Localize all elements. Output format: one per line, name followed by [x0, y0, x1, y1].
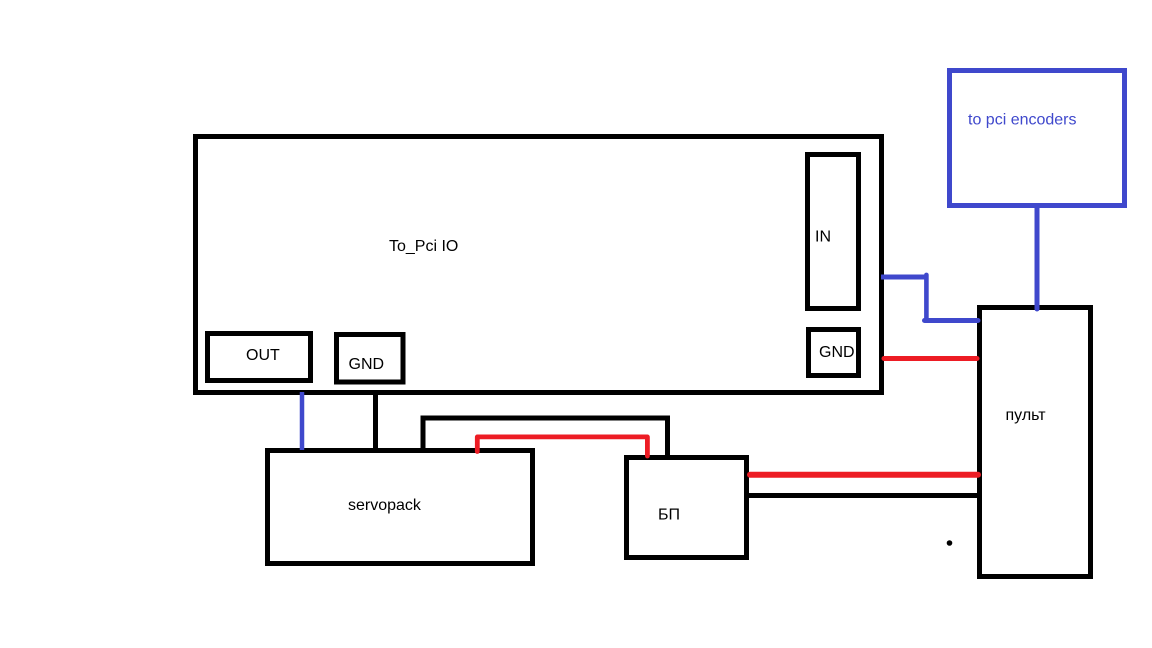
svg-text:servopack: servopack	[348, 497, 422, 514]
svg-text:GND: GND	[349, 356, 385, 373]
svg-text:To_Pci IO: To_Pci IO	[389, 238, 458, 255]
svg-text:БП: БП	[658, 507, 680, 524]
svg-text:to pci encoders: to pci encoders	[968, 112, 1077, 129]
svg-text:пульт: пульт	[1006, 407, 1047, 424]
svg-text:OUT: OUT	[246, 347, 280, 364]
svg-text:IN: IN	[815, 229, 831, 246]
svg-text:GND: GND	[819, 344, 855, 361]
